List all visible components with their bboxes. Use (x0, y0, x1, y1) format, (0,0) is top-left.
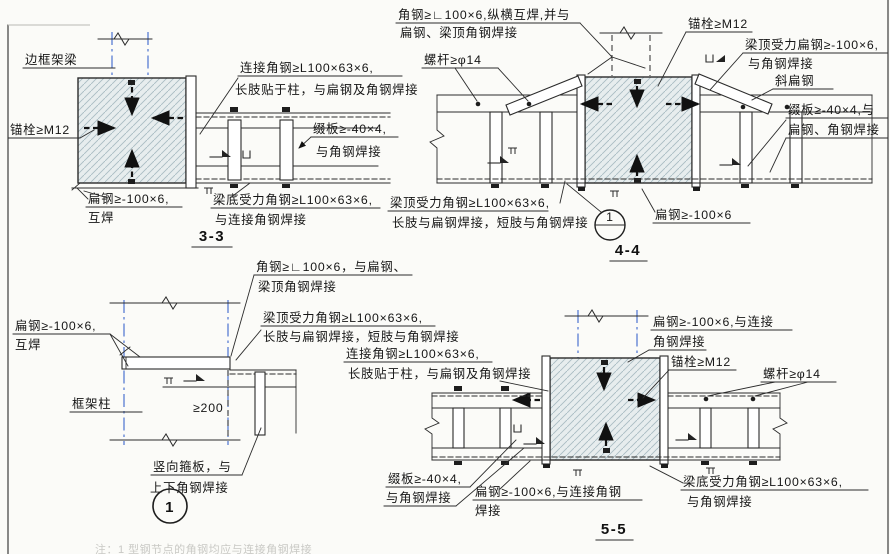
label-connecting-angle-2: 长肢贴于柱，与扁钢及角钢焊接 (348, 366, 531, 381)
flat-steel-bar (186, 76, 196, 188)
label-flat-steel: 扁钢≥-100×6, (88, 192, 169, 206)
label-corner-angle: 角钢≥∟100×6,纵横互焊,并与 (398, 7, 570, 22)
label-connecting-angle: 连接角钢≥L100×63×6, (240, 60, 374, 75)
batten-plate (228, 120, 241, 180)
label-flat-steel: 扁钢≥-100×6, (15, 319, 96, 333)
label-top-angle: 梁顶受力角钢≥L100×63×6, (263, 310, 423, 325)
batten-plate (453, 408, 464, 448)
section-title-5-5: 5-5 (601, 521, 627, 538)
label-top-angle-2: 长肢与扁钢焊接，短肢与角钢焊接 (392, 215, 588, 230)
batten-plate (700, 408, 711, 448)
label-corner-angle-2: 梁顶角钢焊接 (258, 279, 337, 294)
label-top-angle: 梁顶受力角钢≥L100×63×6, (390, 195, 550, 210)
label-batten-2: 扁钢、角钢焊接 (788, 122, 880, 137)
label-anchor: 锚栓≥M12 (688, 16, 748, 31)
label-anchor: 锚栓≥M12 (10, 122, 70, 137)
label-batten: 缀板≥-40×4, (313, 122, 387, 136)
label-frame-beam: 边框架梁 (25, 52, 77, 67)
concrete-column (585, 77, 692, 183)
label-batten-2: 与角钢焊接 (316, 144, 382, 159)
flat-steel-bar (542, 356, 550, 464)
section-title-3-3: 3-3 (199, 228, 225, 245)
label-dimension: ≥200 (193, 401, 223, 415)
batten-plate (280, 120, 293, 180)
label-batten: 缀板≥-40×4,与 (788, 103, 875, 117)
label-stiffener-2: 上下角钢焊接 (150, 480, 229, 495)
label-flat-top: 扁钢≥-100×6,与连接 (653, 314, 774, 329)
label-flat-steel-2: 互焊 (15, 337, 41, 352)
label-bottom-angle-2: 与角钢焊接 (687, 494, 753, 509)
label-top-flat-2: 与角钢焊接 (748, 56, 814, 71)
label-rod: 螺杆≥φ14 (763, 367, 821, 381)
flat-steel-plate (122, 357, 230, 369)
label-flat-steel-2: 互焊 (88, 210, 114, 225)
detail-number: 1 (165, 499, 175, 516)
drawing-sheet: 边框架梁 锚栓≥M12 扁钢≥-100×6, 互焊 连接角钢≥L100×63×6… (0, 0, 890, 554)
vertical-stiffener-plate (255, 372, 265, 435)
label-diagonal-flat: 斜扁钢 (775, 74, 814, 88)
label-batten: 缀板≥-40×4, (388, 472, 462, 486)
flat-steel-bar (577, 75, 585, 187)
cutoff-note: 注：1 型钢节点的角钢均应与连接角钢焊接 (95, 542, 312, 554)
label-flat-top-2: 角钢焊接 (653, 334, 705, 349)
label-batten-2: 与角钢焊接 (386, 490, 452, 505)
flat-steel-bar (692, 75, 700, 187)
label-flat-bottom: 扁钢≥-100×6,与连接角钢 (475, 484, 622, 499)
label-bottom-angle-2: 与连接角钢焊接 (215, 212, 307, 227)
label-rod: 螺杆≥φ14 (424, 53, 482, 67)
bubble-number: 1 (606, 210, 614, 224)
label-bottom-angle: 梁底受力角钢≥L100×63×6, (213, 192, 373, 207)
batten-plate (490, 112, 502, 183)
label-top-flat: 梁顶受力扁钢≥-100×6, (745, 37, 879, 52)
label-top-angle-2: 长肢与扁钢焊接，短肢与角钢焊接 (263, 329, 459, 344)
batten-plate (748, 408, 759, 448)
label-bottom-angle: 梁底受力角钢≥L100×63×6, (683, 474, 843, 489)
label-corner-angle: 角钢≥∟100×6，与扁钢、 (256, 260, 407, 274)
label-anchor: 锚栓≥M12 (671, 354, 731, 369)
label-flat-bottom-2: 焊接 (475, 503, 501, 518)
detail-drawing-svg: 边框架梁 锚栓≥M12 扁钢≥-100×6, 互焊 连接角钢≥L100×63×6… (0, 0, 890, 554)
label-corner-angle-2: 扁钢、梁顶角钢焊接 (400, 25, 518, 40)
label-connecting-angle: 连接角钢≥L100×63×6, (346, 346, 480, 361)
batten-plate (500, 408, 511, 448)
batten-plate (540, 112, 552, 183)
label-stiffener: 竖向箍板，与 (153, 459, 232, 474)
section-title-4-4: 4-4 (615, 242, 641, 259)
label-flat-steel: 扁钢≥-100×6 (655, 208, 732, 222)
label-connecting-angle-2: 长肢贴于柱，与扁钢及角钢焊接 (235, 82, 418, 97)
batten-plate (740, 112, 752, 183)
label-frame-column: 框架柱 (72, 396, 111, 411)
